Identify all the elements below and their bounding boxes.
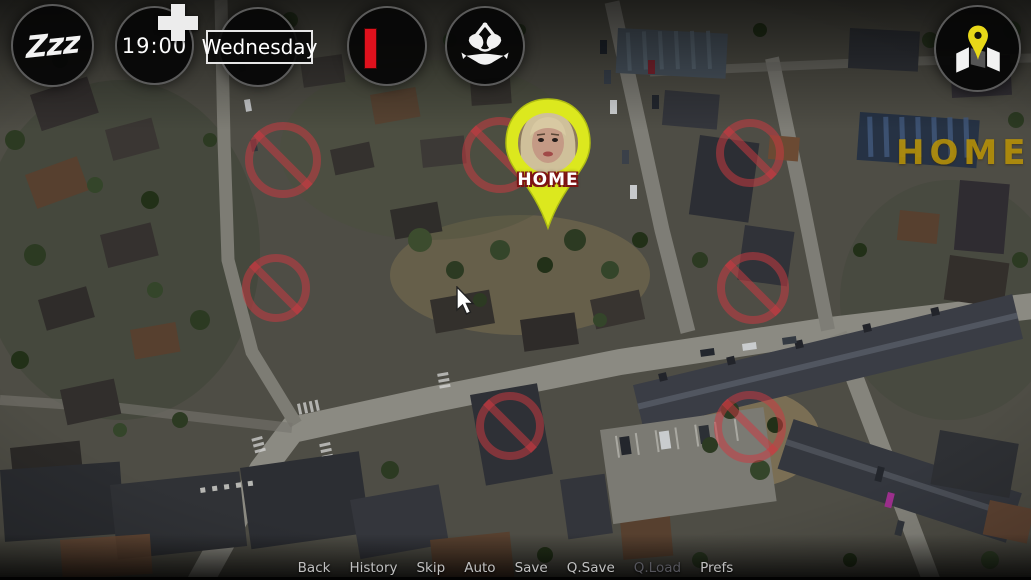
quickmenu-save[interactable]: Save xyxy=(515,560,548,576)
add-time-button plus-icon[interactable] xyxy=(158,4,198,41)
sleep-zzz-icon: Zzz xyxy=(26,25,79,66)
quickmenu-auto[interactable]: Auto xyxy=(464,560,495,576)
bikini-icon xyxy=(459,20,511,72)
hud: Zzz 19:00 Wednesday xyxy=(0,0,1031,580)
day-display: Wednesday xyxy=(206,30,313,64)
quickmenu-skip[interactable]: Skip xyxy=(416,560,445,576)
quickmenu-back[interactable]: Back xyxy=(298,560,331,576)
status-button[interactable] xyxy=(347,6,427,86)
day-value: Wednesday xyxy=(202,35,318,59)
quickmenu-qsave[interactable]: Q.Save xyxy=(567,560,615,576)
quick-menu: BackHistorySkipAutoSaveQ.SaveQ.LoadPrefs xyxy=(0,560,1031,576)
map-button[interactable] xyxy=(934,5,1021,92)
quickmenu-prefs[interactable]: Prefs xyxy=(700,560,733,576)
quickmenu-history[interactable]: History xyxy=(349,560,397,576)
sleep-button[interactable]: Zzz xyxy=(11,4,94,87)
wardrobe-button[interactable] xyxy=(445,6,525,86)
game-screen: HOME HOME Zzz 19:00 xyxy=(0,0,1031,580)
quickmenu-qload: Q.Load xyxy=(634,560,681,576)
red-bar-icon xyxy=(365,29,376,68)
map-with-pin-icon xyxy=(949,20,1007,78)
